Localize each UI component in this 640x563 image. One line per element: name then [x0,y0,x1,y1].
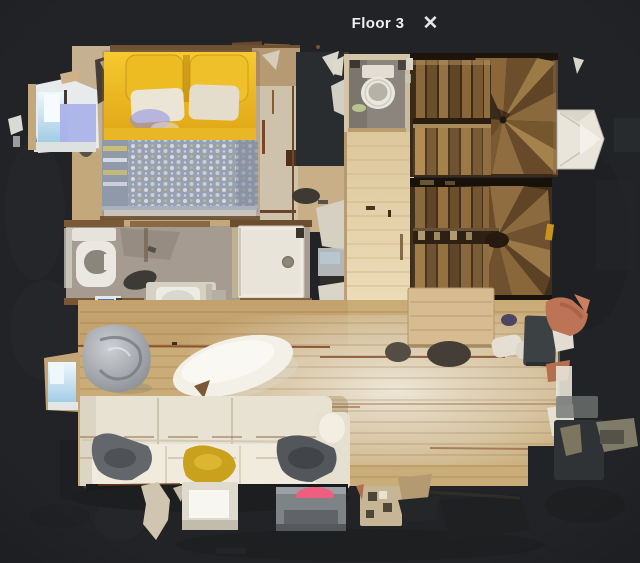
living-room-window-bay [44,352,80,412]
matterport-viewer: Floor 3 ✕ [0,0,640,563]
shower [238,226,304,298]
appliance-with-pink-item [276,487,346,531]
bed [100,50,260,220]
staircase-lower[interactable] [410,178,554,303]
floorplan-3d-view[interactable] [0,0,640,563]
wc-room[interactable] [332,54,413,134]
upper-straight-treads [413,60,491,175]
living-room[interactable] [44,288,638,492]
dark-chair [427,341,471,367]
close-floor-view-button[interactable]: ✕ [418,12,442,35]
close-icon: ✕ [422,13,438,34]
sofa [80,396,350,490]
beanbag-chair [82,324,152,394]
dormer-window-bay [557,110,604,169]
bathroom-toilet [72,228,116,287]
kitchen-table [408,288,494,348]
checkered-fragment [356,484,402,526]
floorplan-svg [0,0,640,563]
floor-label: Floor 3 [352,15,405,32]
